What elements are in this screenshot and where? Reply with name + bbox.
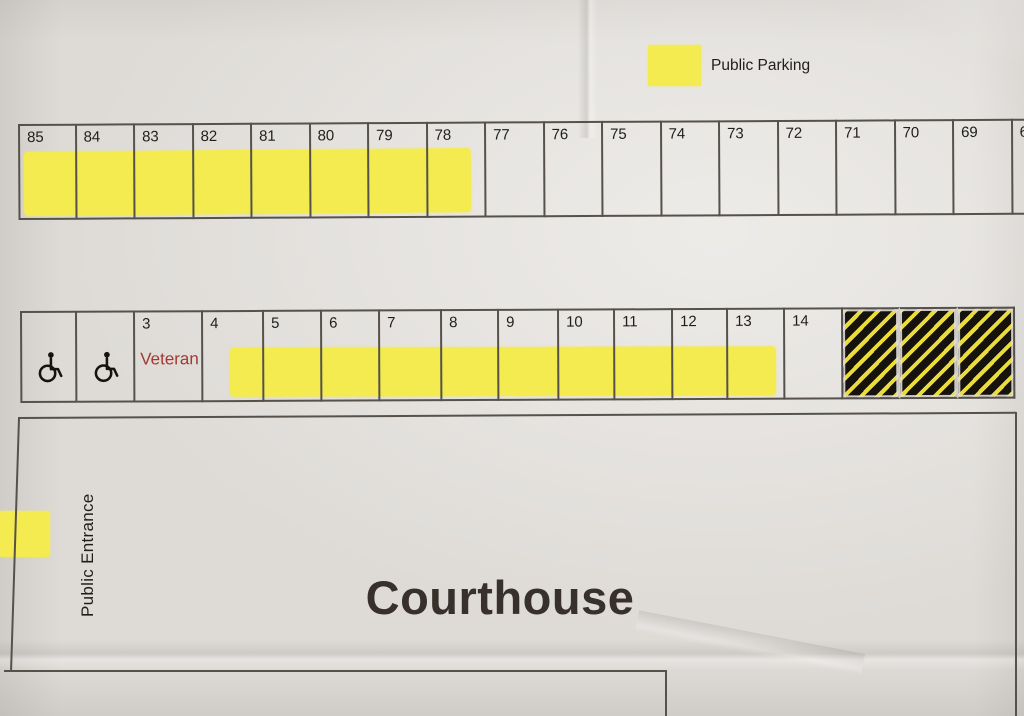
veteran-label: Veteran (135, 349, 201, 369)
courthouse-outline-right (1015, 412, 1017, 716)
space-number: 71 (837, 121, 894, 142)
space-number: 7 (380, 311, 440, 332)
parking-space-11: 11 (615, 308, 673, 400)
parking-space-74: 74 (661, 120, 720, 216)
parking-space-81: 81 (252, 122, 311, 218)
handicap-space (20, 311, 77, 403)
parking-map-photo: Public Parking 8584838281807978777675747… (0, 0, 1024, 716)
parking-row-top: 858483828180797877767574737271706968 (18, 118, 1024, 220)
space-number: 6 (322, 311, 378, 332)
courthouse-wing-line (665, 671, 667, 716)
parking-space-69: 69 (954, 119, 1013, 215)
parking-space-71: 71 (837, 119, 896, 215)
veteran-space: 3Veteran (135, 310, 203, 402)
parking-space-4: 4 (203, 310, 264, 402)
parking-space-14: 14 (785, 307, 843, 399)
parking-space-84: 84 (76, 123, 135, 219)
parking-space-7: 7 (380, 309, 442, 401)
space-number: 72 (779, 122, 836, 143)
wheelchair-icon (88, 350, 122, 384)
courthouse-label: Courthouse (330, 570, 670, 625)
space-number: 82 (194, 125, 251, 146)
space-number: 68 (1012, 120, 1024, 141)
parking-space-9: 9 (499, 309, 559, 401)
parking-space-83: 83 (135, 123, 194, 219)
parking-space-6: 6 (322, 309, 380, 401)
wheelchair-icon (32, 350, 66, 384)
space-number: 83 (135, 125, 192, 146)
parking-space-8: 8 (442, 309, 499, 401)
parking-space-78: 78 (427, 122, 486, 218)
space-number: 69 (954, 121, 1011, 142)
parking-space-75: 75 (603, 121, 662, 217)
parking-space-5: 5 (264, 310, 322, 402)
courthouse-outline-bottom (4, 670, 667, 672)
space-number: 78 (428, 124, 485, 145)
parking-space-80: 80 (310, 122, 369, 218)
space-number: 3 (135, 312, 201, 333)
parking-row-middle: 3Veteran4567891011121314 (20, 307, 1015, 403)
parking-space-70: 70 (895, 119, 954, 215)
space-number: 84 (77, 125, 134, 146)
parking-space-85: 85 (18, 124, 77, 220)
parking-space-82: 82 (193, 123, 252, 219)
space-number: 8 (442, 311, 497, 332)
space-number: 75 (603, 123, 660, 144)
paper-crease (0, 640, 1024, 670)
space-number: 5 (264, 312, 320, 333)
parking-space-10: 10 (559, 308, 615, 400)
space-number: 73 (720, 122, 777, 143)
public-entrance-label: Public Entrance (78, 485, 104, 617)
parking-space-13: 13 (728, 308, 785, 400)
space-number: 81 (252, 124, 309, 145)
legend-label: Public Parking (711, 57, 810, 75)
space-number: 79 (369, 124, 426, 145)
legend-yellow-swatch (648, 45, 701, 86)
parking-space-73: 73 (720, 120, 779, 216)
parking-space-77: 77 (486, 121, 545, 217)
space-number: 10 (559, 310, 613, 331)
space-number: 11 (615, 310, 671, 331)
parking-space-12: 12 (673, 308, 728, 400)
space-number: 76 (545, 123, 602, 144)
paper-crease (578, 0, 598, 138)
public-entrance-highlight (0, 511, 50, 557)
space-number: 9 (499, 311, 557, 332)
space-number: 74 (662, 122, 719, 143)
space-number: 4 (203, 312, 262, 333)
space-number: 85 (20, 126, 75, 147)
space-number: 70 (895, 121, 952, 142)
space-number: 14 (785, 309, 841, 330)
space-number: 13 (728, 310, 783, 331)
space-number: 12 (673, 310, 726, 331)
parking-space-76: 76 (544, 121, 603, 217)
parking-space-68: 68 (1012, 118, 1024, 214)
space-number: 77 (486, 123, 543, 144)
no-parking-hatched-space (900, 307, 958, 399)
no-parking-hatched-space (958, 307, 1015, 399)
no-parking-hatched-space (843, 307, 900, 399)
courthouse-outline-top (18, 412, 1016, 419)
space-number: 80 (311, 124, 368, 145)
parking-space-79: 79 (369, 122, 428, 218)
parking-space-72: 72 (778, 120, 837, 216)
handicap-space (77, 310, 135, 402)
